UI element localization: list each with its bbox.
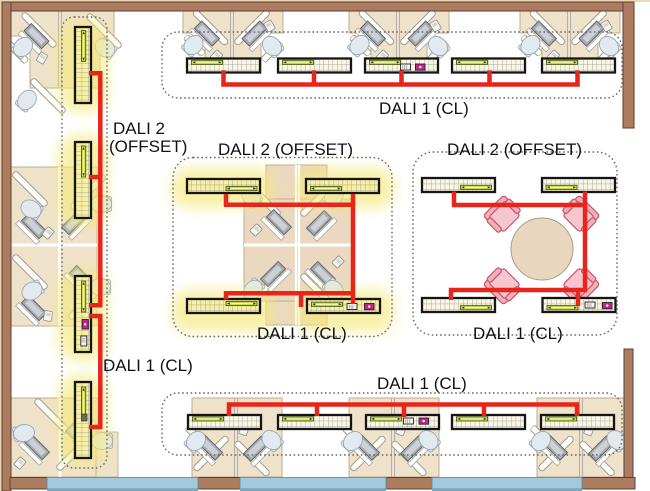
svg-text:DALI 2: DALI 2 bbox=[113, 119, 165, 138]
svg-text:DALI 2 (OFFSET): DALI 2 (OFFSET) bbox=[447, 140, 582, 159]
svg-text:DALI 1 (CL): DALI 1 (CL) bbox=[103, 356, 193, 375]
svg-text:(OFFSET): (OFFSET) bbox=[109, 137, 187, 156]
svg-text:DALI 1 (CL): DALI 1 (CL) bbox=[379, 99, 469, 118]
svg-text:DALI 1 (CL): DALI 1 (CL) bbox=[377, 374, 467, 393]
svg-text:DALI 1 (CL): DALI 1 (CL) bbox=[257, 324, 347, 343]
svg-text:DALI 2 (OFFSET): DALI 2 (OFFSET) bbox=[218, 140, 353, 159]
svg-text:DALI 1 (CL): DALI 1 (CL) bbox=[473, 324, 563, 343]
